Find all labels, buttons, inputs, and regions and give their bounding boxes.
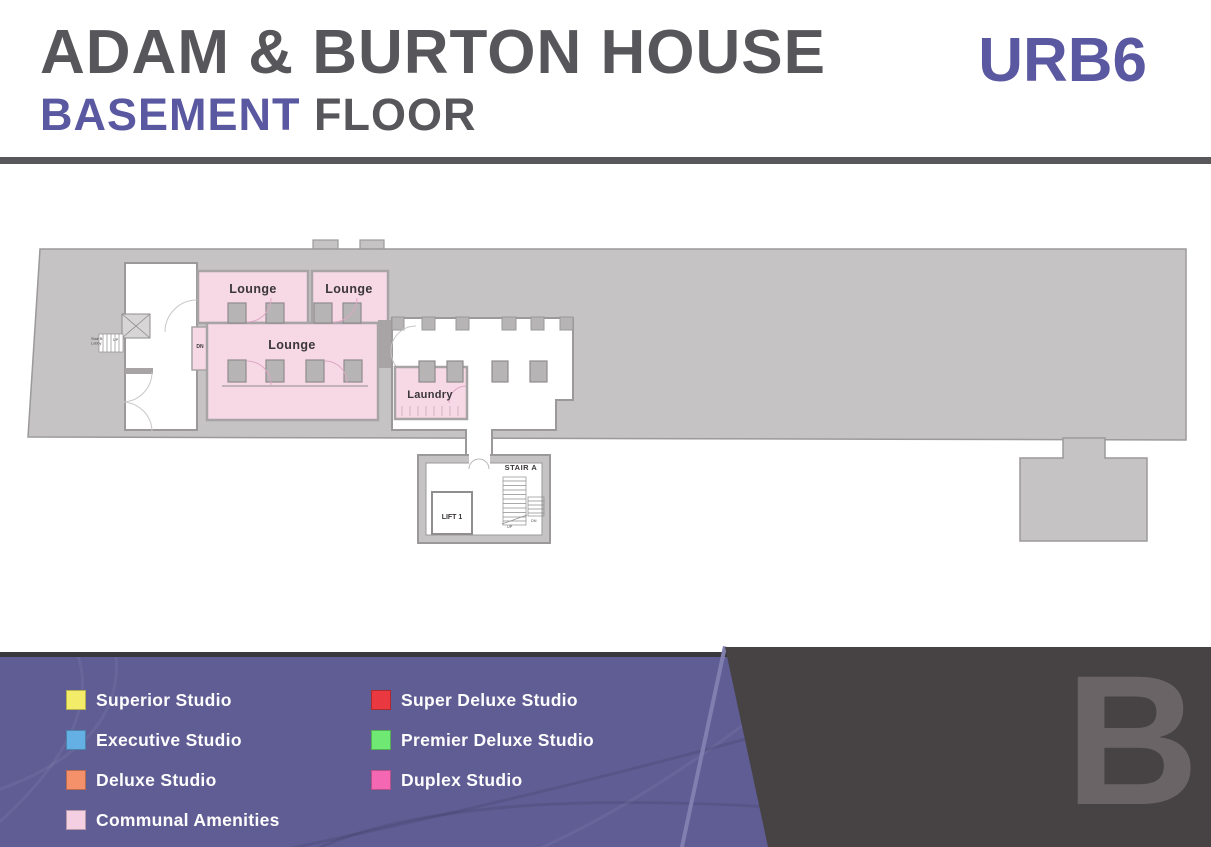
lift-1-label: LIFT 1 xyxy=(442,514,463,521)
dn-corridor: DN xyxy=(192,327,208,370)
stair-up-label: UP xyxy=(507,525,513,529)
legend-label: Superior Studio xyxy=(96,690,232,711)
lobby-up-label: UP xyxy=(113,338,119,342)
legend-item-duplex-studio: Duplex Studio xyxy=(371,770,523,790)
stair-a-label: STAIR A xyxy=(505,463,538,472)
lounge-top-left-room xyxy=(198,271,308,323)
stair-lobby-label-1: Stair B xyxy=(91,337,103,341)
laundry-label: Laundry xyxy=(407,389,453,401)
brand-watermark: B xyxy=(1065,649,1199,834)
superior-studio-swatch xyxy=(66,690,86,710)
lounge-top-left-label: Lounge xyxy=(229,282,277,296)
wall-jog xyxy=(378,320,392,368)
stair-lobby-label-2: Lobby xyxy=(91,342,101,346)
lounge-top-right-label: Lounge xyxy=(325,282,373,296)
deluxe-studio-swatch xyxy=(66,770,86,790)
interior-wall xyxy=(125,368,153,374)
communal-amenities-swatch xyxy=(66,810,86,830)
brand-panel: B xyxy=(716,647,1211,847)
super-deluxe-studio-swatch xyxy=(371,690,391,710)
legend-label: Premier Deluxe Studio xyxy=(401,730,594,751)
legend-item-super-deluxe-studio: Super Deluxe Studio xyxy=(371,690,578,710)
floor-plan-page: ADAM & BURTON HOUSE BASEMENT FLOOR URB6 xyxy=(0,0,1211,847)
legend-label: Deluxe Studio xyxy=(96,770,217,791)
duplex-studio-swatch xyxy=(371,770,391,790)
stair-dn-label: DN xyxy=(531,519,537,523)
dn-label: DN xyxy=(196,344,204,350)
legend-item-superior-studio: Superior Studio xyxy=(66,690,232,710)
legend-item-communal-amenities: Communal Amenities xyxy=(66,810,280,830)
legend-label: Super Deluxe Studio xyxy=(401,690,578,711)
legend-label: Duplex Studio xyxy=(401,770,523,791)
legend-top-border xyxy=(0,652,737,657)
lounge-main-label: Lounge xyxy=(268,338,316,352)
legend-item-executive-studio: Executive Studio xyxy=(66,730,242,750)
stair-b-treads xyxy=(99,334,123,352)
legend-item-premier-deluxe-studio: Premier Deluxe Studio xyxy=(371,730,594,750)
executive-studio-swatch xyxy=(66,730,86,750)
legend-item-deluxe-studio: Deluxe Studio xyxy=(66,770,217,790)
premier-deluxe-studio-swatch xyxy=(371,730,391,750)
legend-panel: Superior Studio Executive Studio Deluxe … xyxy=(0,657,769,847)
building-extension xyxy=(1020,438,1147,541)
legend-label: Executive Studio xyxy=(96,730,242,751)
lift-1-room xyxy=(432,492,472,534)
stair-lift-block: STAIR A LIFT 1 UP DN xyxy=(418,450,550,543)
legend-label: Communal Amenities xyxy=(96,810,280,831)
